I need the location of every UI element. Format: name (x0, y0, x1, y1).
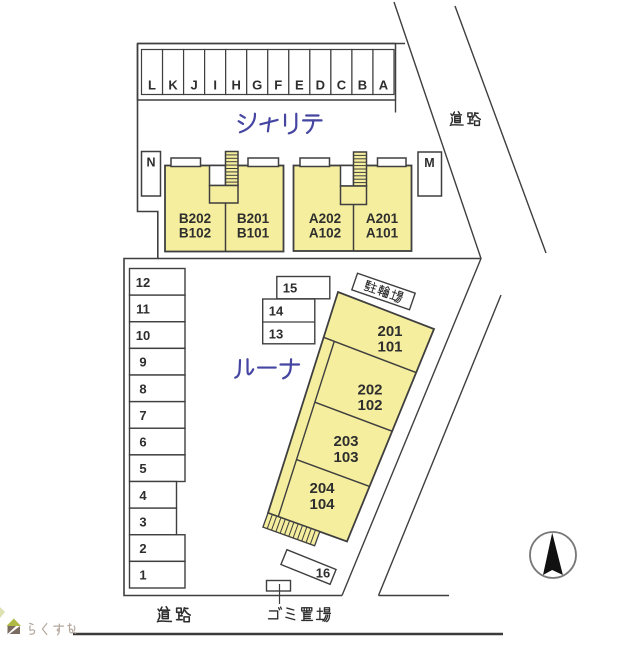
svg-text:16: 16 (316, 566, 330, 581)
svg-text:C: C (337, 78, 347, 93)
svg-text:5: 5 (139, 461, 146, 476)
svg-text:204: 204 (309, 480, 335, 497)
svg-text:E: E (295, 78, 304, 93)
svg-text:101: 101 (377, 339, 402, 356)
svg-text:N: N (146, 156, 155, 170)
svg-text:D: D (316, 78, 325, 93)
svg-text:10: 10 (136, 328, 150, 343)
svg-text:4: 4 (139, 488, 147, 503)
svg-text:12: 12 (136, 275, 150, 290)
svg-text:14: 14 (269, 304, 284, 319)
svg-text:A101: A101 (366, 226, 399, 241)
svg-text:F: F (274, 78, 282, 93)
svg-text:A102: A102 (309, 226, 341, 241)
svg-text:203: 203 (333, 433, 358, 450)
svg-text:102: 102 (357, 397, 382, 414)
svg-text:201: 201 (377, 323, 402, 340)
svg-text:202: 202 (357, 382, 382, 399)
svg-text:J: J (190, 78, 197, 93)
svg-text:K: K (168, 78, 178, 93)
svg-text:B202: B202 (179, 211, 211, 226)
svg-text:2: 2 (139, 541, 146, 556)
svg-text:6: 6 (139, 435, 146, 450)
svg-text:7: 7 (139, 408, 146, 423)
svg-text:103: 103 (333, 449, 358, 466)
svg-text:B101: B101 (237, 226, 270, 241)
svg-text:M: M (424, 156, 434, 170)
svg-text:8: 8 (139, 381, 146, 396)
svg-text:A: A (379, 78, 389, 93)
svg-text:15: 15 (283, 281, 297, 296)
svg-text:A201: A201 (366, 211, 399, 226)
svg-text:A202: A202 (309, 211, 341, 226)
svg-text:B102: B102 (179, 226, 211, 241)
svg-text:13: 13 (269, 327, 283, 342)
svg-text:L: L (148, 78, 156, 93)
svg-text:104: 104 (309, 496, 335, 513)
svg-text:B: B (358, 78, 367, 93)
svg-text:3: 3 (139, 514, 146, 529)
svg-text:I: I (213, 78, 217, 93)
svg-text:G: G (252, 78, 262, 93)
svg-text:B201: B201 (237, 211, 270, 226)
svg-text:11: 11 (136, 301, 150, 316)
svg-text:9: 9 (139, 355, 146, 370)
svg-text:H: H (231, 78, 240, 93)
svg-text:1: 1 (139, 568, 146, 583)
